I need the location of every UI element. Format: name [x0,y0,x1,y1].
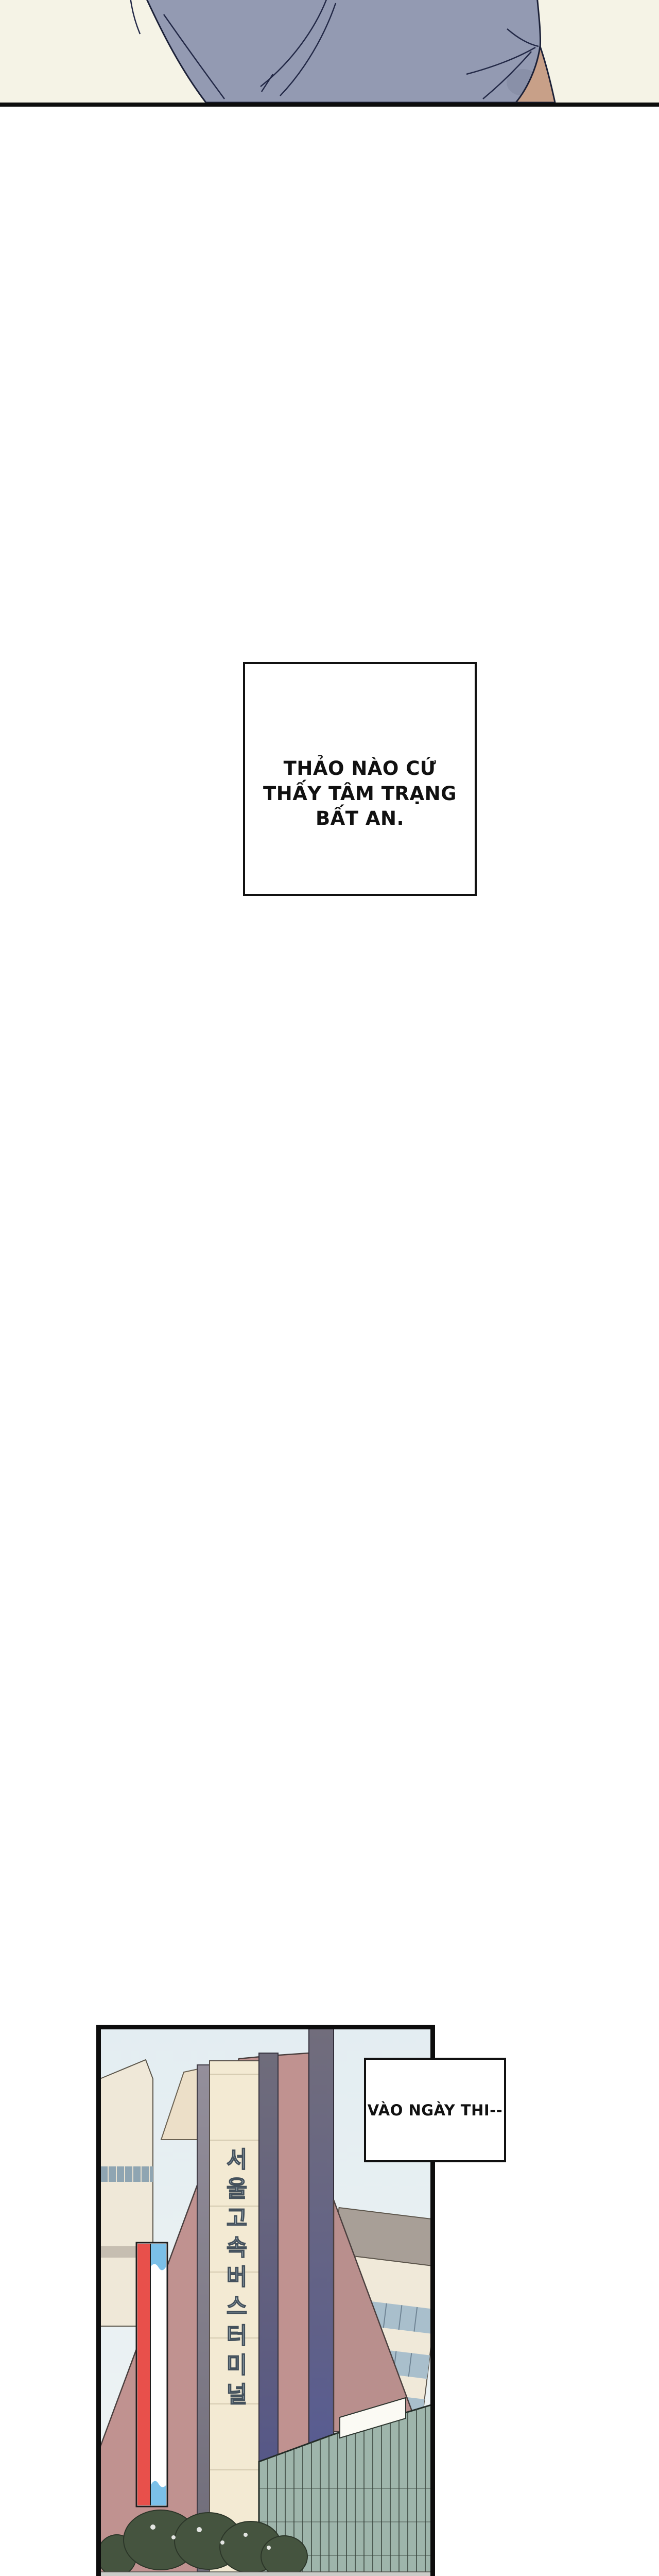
thought-line-1: THẢO NÀO CỨ [284,756,437,782]
tower-dark-strip-right [309,2029,334,2478]
shirt-closeup-art [0,0,659,103]
fence [96,2572,435,2576]
panel-shirt-closeup [0,0,659,107]
thought-line-2: THẤY TÂM TRẠNG [263,782,457,807]
shirt-shape [145,0,541,103]
building-sign-korean: 서울고속버스터미널 [211,2147,258,2467]
tower-grey-strip [197,2065,210,2572]
caption-box: VÀO NGÀY THI-- [364,2058,506,2162]
caption-text: VÀO NGÀY THI-- [368,2102,502,2119]
tower-banner [136,2243,167,2506]
webtoon-page: { "thought_box": { "lines": ["THẢO NÀO C… [0,0,659,2576]
thought-box: THẢO NÀO CỨ THẤY TÂM TRẠNG BẤT AN. [243,662,477,896]
thought-line-3: BẤT AN. [316,806,404,832]
